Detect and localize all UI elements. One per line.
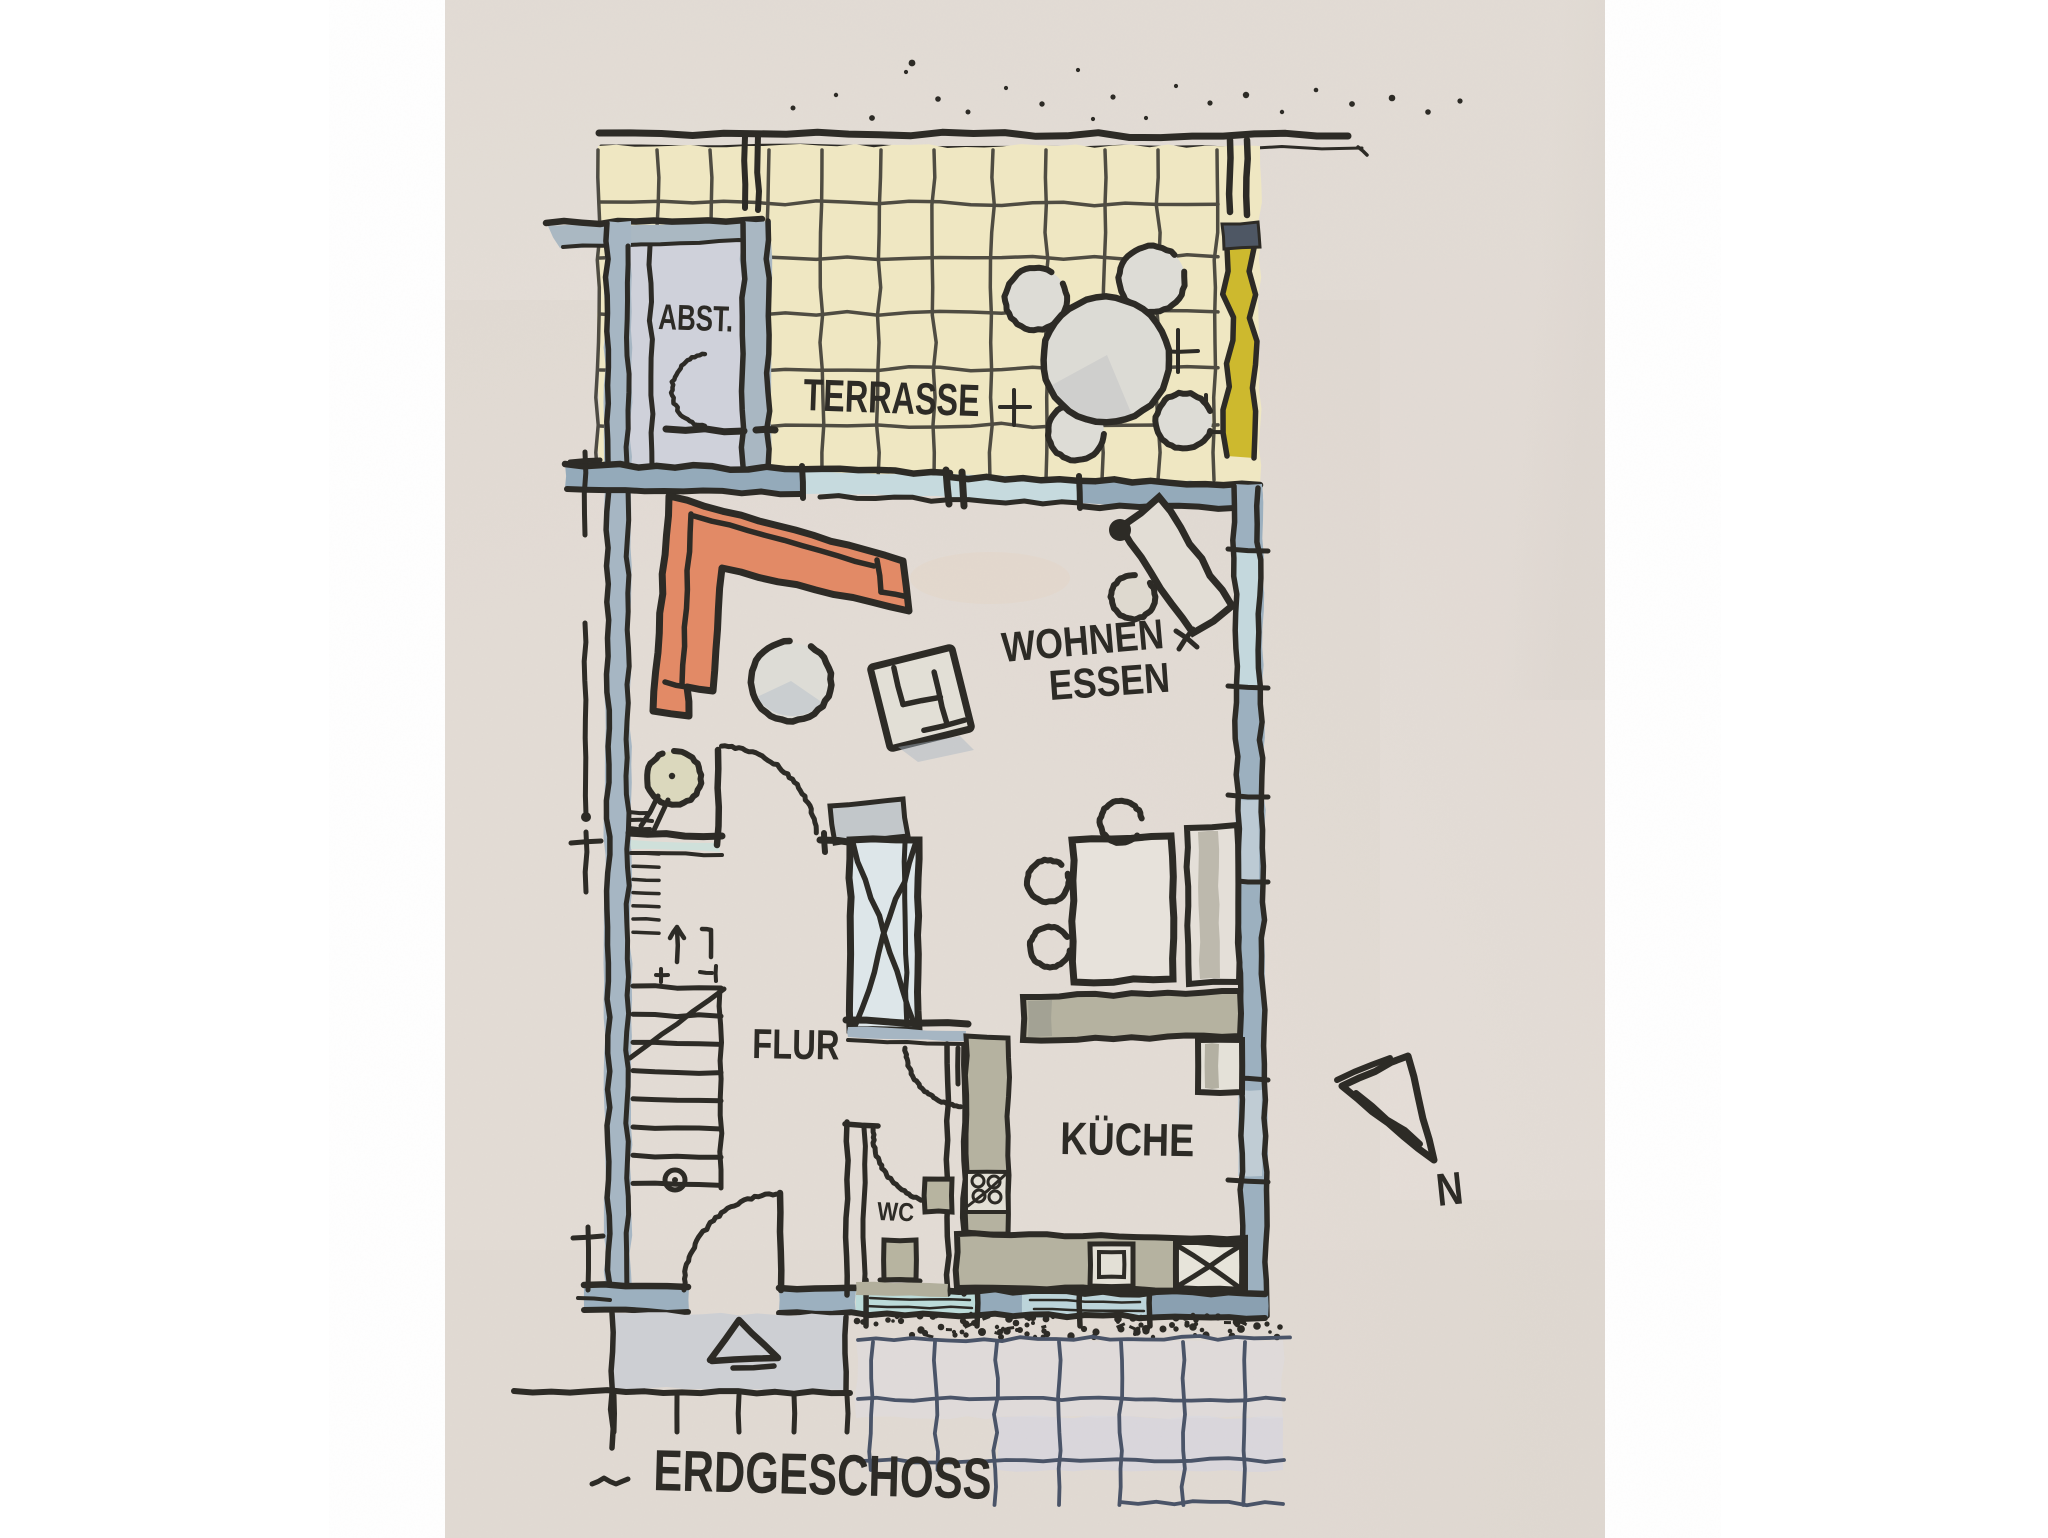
svg-text:ERDGESCHOSS: ERDGESCHOSS	[653, 1438, 993, 1511]
svg-text:KÜCHE: KÜCHE	[1060, 1112, 1195, 1166]
svg-text:WC: WC	[877, 1197, 915, 1227]
svg-text:FLUR: FLUR	[752, 1020, 840, 1068]
svg-text:TERRASSE: TERRASSE	[803, 371, 981, 426]
svg-text:ABST.: ABST.	[658, 297, 734, 340]
svg-text:N: N	[1434, 1161, 1466, 1215]
svg-text:ESSEN: ESSEN	[1047, 655, 1171, 710]
